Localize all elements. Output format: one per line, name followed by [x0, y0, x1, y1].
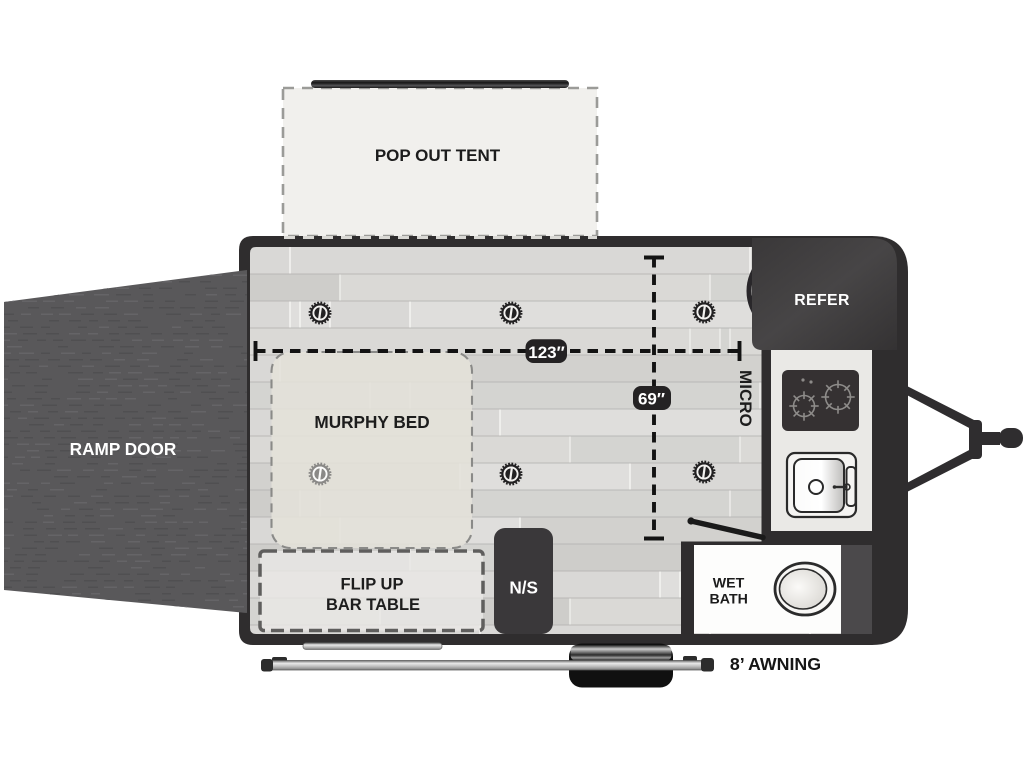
svg-text:MURPHY BED: MURPHY BED: [314, 412, 429, 432]
svg-text:FLIP UP: FLIP UP: [341, 576, 404, 594]
svg-text:N/S: N/S: [509, 578, 538, 598]
svg-text:123″: 123″: [528, 343, 565, 362]
svg-text:RAMP DOOR: RAMP DOOR: [70, 439, 177, 459]
svg-text:BAR TABLE: BAR TABLE: [326, 596, 420, 614]
svg-text:69″: 69″: [638, 390, 665, 409]
svg-text:POP OUT TENT: POP OUT TENT: [375, 146, 501, 165]
svg-text:8’ AWNING: 8’ AWNING: [730, 654, 821, 674]
svg-text:MICRO: MICRO: [736, 370, 755, 427]
svg-text:WET: WET: [713, 576, 745, 592]
svg-text:BATH: BATH: [710, 591, 748, 607]
svg-text:REFER: REFER: [794, 292, 850, 309]
